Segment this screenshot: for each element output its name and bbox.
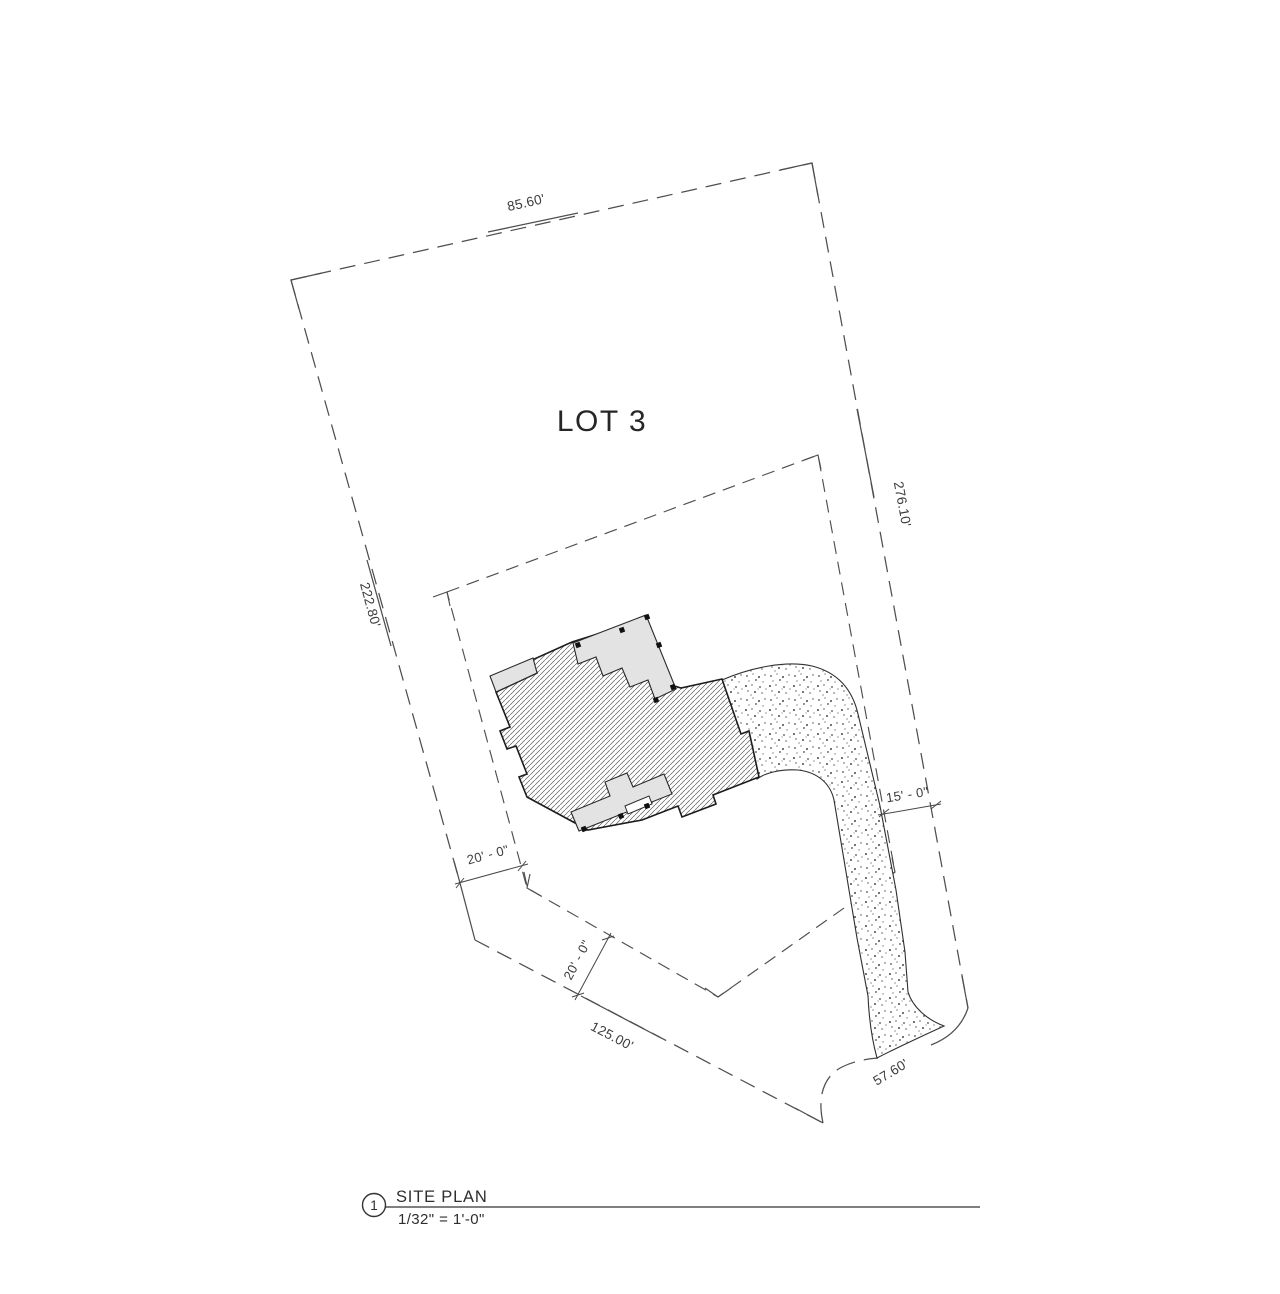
boundary-dim-frontage: 57.60' bbox=[870, 1056, 910, 1089]
boundary-dim-right: 276.10' bbox=[891, 480, 914, 528]
lot-label: LOT 3 bbox=[557, 405, 647, 438]
drawing-scale: 1/32" = 1'-0" bbox=[398, 1211, 485, 1228]
boundary-dim-bottom: 125.00' bbox=[588, 1019, 636, 1054]
drawing-title: SITE PLAN bbox=[396, 1188, 488, 1206]
boundary-dim-top: 85.60' bbox=[506, 191, 547, 214]
site-plan-drawing: LOT 3 85.60' 276.10' 222.80' 125.00' 57.… bbox=[0, 0, 1280, 1294]
building bbox=[490, 614, 759, 832]
title-block: 1 SITE PLAN 1/32" = 1'-0" bbox=[363, 1188, 981, 1228]
setback-dim-bottom: 20' - 0" bbox=[560, 937, 593, 982]
setback-dim-left: 20' - 0" bbox=[465, 842, 510, 868]
site-plan-sheet: LOT 3 85.60' 276.10' 222.80' 125.00' 57.… bbox=[0, 0, 1280, 1294]
driveway-stipple bbox=[722, 664, 944, 1058]
detail-number: 1 bbox=[370, 1198, 378, 1213]
setback-dim-right: 15' - 0" bbox=[885, 784, 930, 806]
driveway bbox=[722, 664, 944, 1058]
